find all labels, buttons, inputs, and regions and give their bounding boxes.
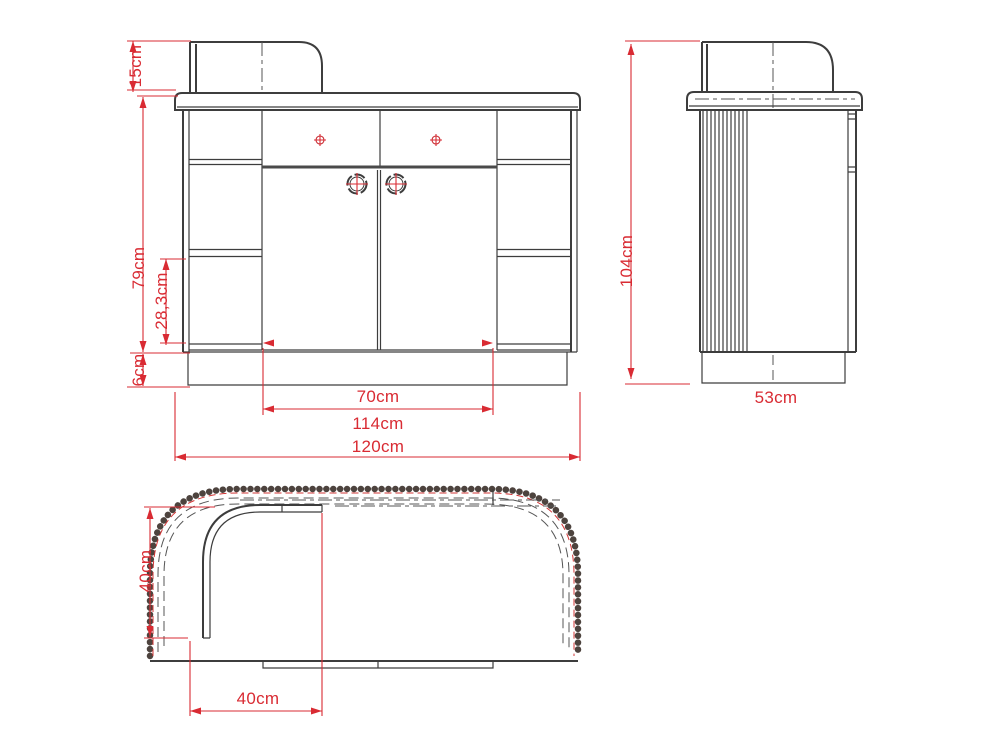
dim-front-plinth-height-label: 6cm [129, 353, 148, 386]
dim-side-depth-label: 53cm [755, 388, 798, 407]
dim-top-counter-return-width-label: 40cm [237, 689, 280, 708]
front-raised-shelf-outline [190, 42, 322, 92]
dim-front-total-width-label: 120cm [352, 437, 405, 456]
side-edge-joint-marks [848, 114, 856, 172]
dim-front-compartment-height: 28,3cm [152, 259, 186, 345]
drawer-knob-right [430, 134, 442, 146]
top-bead-trim-edge [150, 489, 578, 656]
drawing-canvas: 15cm 79cm 28,3cm 6cm [0, 0, 1000, 750]
top-plinth-outline [263, 661, 493, 668]
dim-front-body-height-label: 79cm [129, 247, 148, 290]
side-counter-band [687, 92, 862, 110]
dim-top-counter-depth-label: 40cm [136, 550, 155, 593]
dim-side-depth: 53cm [755, 388, 798, 407]
dim-front-body-width-label: 114cm [352, 414, 403, 433]
front-plinth [188, 352, 567, 385]
front-doors [263, 170, 493, 350]
dim-front-shelf-height: 15cm [126, 41, 191, 92]
front-interior-verticals [262, 110, 497, 350]
side-view [687, 42, 862, 383]
door-knob-left [346, 173, 368, 195]
dim-front-shelf-height-label: 15cm [126, 45, 145, 88]
dim-side-total-height: 104cm [617, 41, 700, 384]
drawer-knob-left [314, 134, 326, 146]
door-knob-right [385, 173, 407, 195]
top-red-dashed-contour [153, 493, 574, 656]
dim-front-body-width: 114cm [352, 414, 403, 433]
dim-front-compartment-height-label: 28,3cm [152, 272, 171, 330]
top-hidden-contour-1 [158, 498, 569, 652]
top-hidden-contour-2 [164, 504, 563, 646]
top-counter-inner-edge-inner [203, 505, 322, 638]
dim-front-plinth-height: 6cm [127, 353, 190, 387]
dim-front-doors-width: 70cm [263, 340, 493, 416]
top-counter-inner-edge-outer [203, 505, 322, 638]
top-view [150, 489, 578, 668]
side-fluting-lines [703, 110, 747, 352]
side-raised-shelf-outline [702, 42, 833, 92]
dim-front-doors-width-label: 70cm [357, 387, 400, 406]
technical-drawing: 15cm 79cm 28,3cm 6cm [0, 0, 1000, 750]
front-view [175, 42, 580, 385]
front-body-sides-inner [189, 110, 577, 352]
dim-side-total-height-label: 104cm [617, 235, 636, 288]
front-dimensions: 15cm 79cm 28,3cm 6cm [126, 41, 580, 461]
